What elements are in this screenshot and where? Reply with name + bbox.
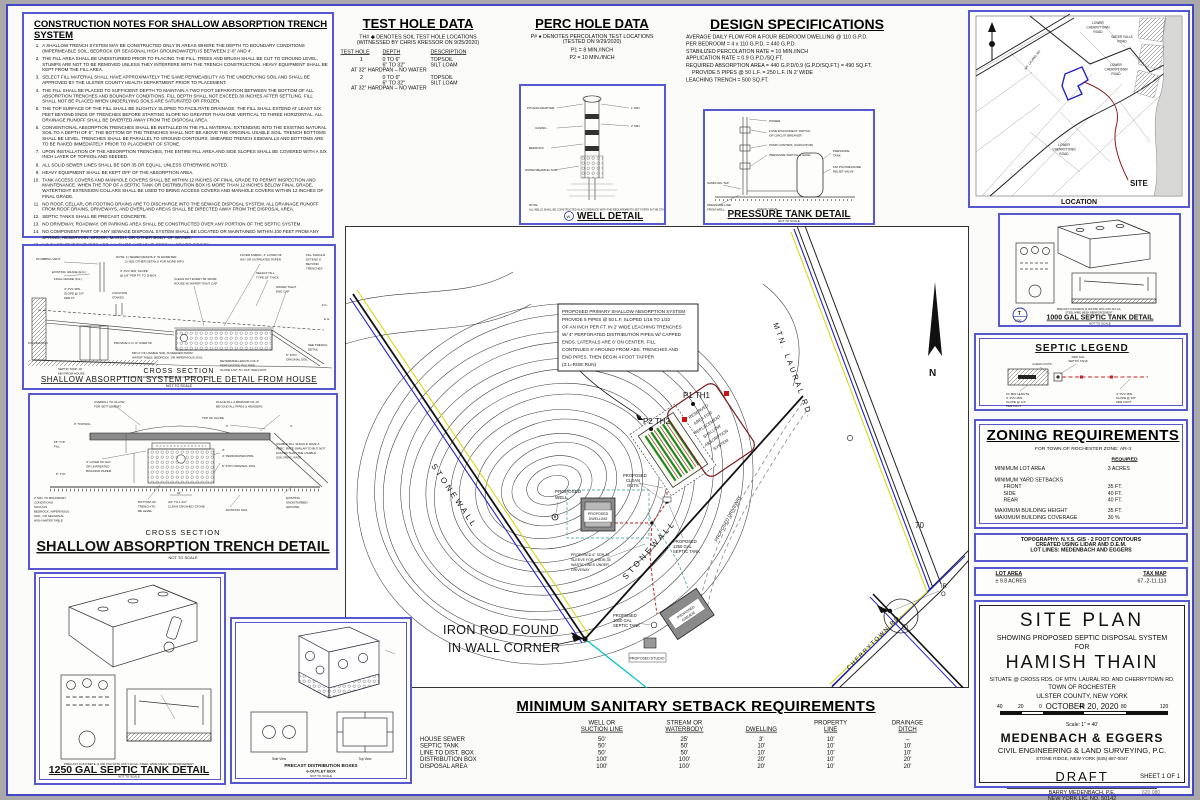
contour-70-label: 70 <box>915 521 924 530</box>
title-scale: Scale: 1" = 40' <box>980 722 1184 728</box>
location-map-panel: SITE MT. LAUREL RD LOWER CHERRYTOWN ROAD… <box>968 10 1190 208</box>
tax-map-header: TAX MAP <box>1143 571 1166 576</box>
trench-label: TRENCH TO <box>138 505 156 509</box>
spec-line: STABILIZED PERCOLATION RATE = 10 MIN./IN… <box>686 48 971 55</box>
svg-text:CONTINUES 6' AROUND FROM ABS.: CONTINUES 6' AROUND FROM ABS. TRENCHES A… <box>562 347 679 352</box>
perc-p1: P1 = 8 MIN./INCH <box>497 48 687 53</box>
road-label: ROAD <box>1117 40 1127 44</box>
trench-label: 2' MIN. TO BOUNDARY <box>34 496 66 500</box>
perc-p2: P2 = 10 MIN./INCH <box>497 55 687 60</box>
title-owner: HAMISH THAIN <box>980 652 1184 673</box>
hole-id: 1 <box>341 57 383 68</box>
spec-line: APPLICATION RATE = 0.9 G.P.D./SQ.FT. <box>686 55 971 62</box>
trench-label: FOR SETTLEMENT <box>94 405 121 409</box>
test-hole-data-block: TEST HOLE DATA TH# ◆ DENOTES SOIL TEST H… <box>336 16 500 151</box>
iron-rod-clip-text: IR <box>941 584 948 590</box>
col-depth: DEPTH <box>383 50 431 55</box>
note-item: HEAVY EQUIPMENT SHALL BE KEPT OFF OF THE… <box>41 170 328 175</box>
profile-label: 2) SEE OTHER DETAILS FOR MORE INFO <box>125 260 185 264</box>
perc-hole-data-block: PERC HOLE DATA P# ● DENOTES PERCOLATION … <box>497 16 687 78</box>
profile-label: EXISTING GRADE (E.G.) <box>52 270 86 274</box>
road-label: CHERRYTOWN <box>1086 26 1110 30</box>
hardpan-note: AT 32" HARDPAN – NO WATER <box>336 86 500 91</box>
road-label: ROAD <box>1093 30 1103 34</box>
trench-label: 4' <box>290 424 293 428</box>
setback-row-label: DISTRIBUTION BOX <box>420 756 563 763</box>
trench-detail-panel: OVERFILL TO ALLOW FOR SETTLEMENT 6" TOPS… <box>28 393 338 570</box>
profile-label: SLOPE @ 1/4" <box>64 292 84 296</box>
trench-nts: NOT TO SCALE <box>168 555 197 560</box>
svg-text:SEPTIC TANK: SEPTIC TANK <box>613 623 640 628</box>
trench-label: SUCH AS <box>34 505 47 509</box>
profile-label: FILTER FABRIC, 4" LAYER OF <box>240 253 282 257</box>
iron-rod-clip-text: O <box>941 592 946 598</box>
well-note-label: NOTE: <box>529 203 538 207</box>
trench-label: BE LEVEL <box>138 509 153 513</box>
hardpan-note: AT 32" HARDPAN – NO WATER <box>336 68 500 73</box>
profile-label: 6" INTO <box>286 353 297 357</box>
road-label: LOWER <box>1110 63 1122 67</box>
soil: SILT LOAM <box>431 81 458 86</box>
profile-label: E.G. <box>324 317 330 321</box>
tank-1000-nts: NOT TO SCALE <box>1089 322 1111 326</box>
profile-label: END CAP <box>276 290 289 294</box>
title-town: TOWN OF ROCHESTER <box>980 685 1184 691</box>
title-license: NEW YORK LIC. NO. 50142 <box>980 796 1184 800</box>
dbox-side-view: Side View <box>272 757 287 761</box>
profile-label: PROVIDE C.O. IF OVER 50' <box>114 341 153 345</box>
note-item: CONVENTIONAL ABSORPTION TRENCHES SHALL B… <box>41 126 328 148</box>
legend-right-note: PER FOOT <box>1116 400 1132 404</box>
trench-label: FASTER THAN THE USABLE <box>276 451 316 455</box>
trench-label: 6' <box>226 424 229 428</box>
tank-1250-panel: PRECAST CONCRETE (4,000 PSI) WITH 6X6 X1… <box>34 572 226 785</box>
well-detail-panel: PITLESS ADAPTER CASING BEDROCK WATER BEA… <box>519 84 666 225</box>
profile-detail-panel: PLUMBING VENT EXISTING GRADE (E.G.) FINA… <box>22 244 336 390</box>
title-firm3: STONE RIDGE, NEW YORK (845) 687-0047 <box>980 756 1184 761</box>
p-prefix: P# <box>531 34 537 39</box>
profile-label: PLUMBING VENT <box>36 257 61 261</box>
pt-label-fuse: OR CIRCUIT BREAKER <box>769 134 802 138</box>
iron-rod-text: IRON ROD FOUND <box>443 623 559 637</box>
note-item: UPON INSTALLATION OF THE ABSORPTION TREN… <box>41 150 328 161</box>
profile-label: HOUSE W/ WATER TIGHT CAP <box>174 282 217 286</box>
dbox-top-view: Top View <box>359 757 373 761</box>
zoning-row-value: 40 FT. <box>1108 491 1172 496</box>
studio-label: PROPOSED STUDIO <box>630 657 665 661</box>
trench-cross-section: CROSS SECTION <box>145 528 220 537</box>
zoning-row-value: 3 ACRES <box>1108 466 1172 471</box>
septic-tank-1250-symbol <box>663 497 671 502</box>
svg-text:OF AN INCH PER FT. IN 2' WIDE: OF AN INCH PER FT. IN 2' WIDE LEACHING T… <box>562 325 682 330</box>
design-specs-title: DESIGN SPECIFICATIONS <box>710 16 971 32</box>
trench-label: UNDISTURBED <box>286 501 309 505</box>
profile-label: PER FT. <box>64 296 75 300</box>
setback-col-header: PROPERTY <box>814 719 847 726</box>
note-item: THE TOP SURFACE OF THE FILL SHALL BE SLI… <box>41 107 328 123</box>
road-label: CHERRYTOWN <box>1052 148 1076 152</box>
spec-line: LEACHING TRENCH = 500 SQ.FT. <box>686 76 971 83</box>
profile-label: F.G. <box>322 303 328 307</box>
profile-label: HAY OR UNTREATED PAPER <box>240 258 282 262</box>
trench-label: CLEAN CRUSHED STONE <box>168 505 205 509</box>
well-dim-2: 2' MIN <box>631 124 640 128</box>
septic-legend-title: SEPTIC LEGEND <box>1035 343 1129 354</box>
setback-table: WELL ORSUCTION LINE STREAM ORWATERBODY D… <box>420 719 972 769</box>
profile-nts: NOT TO SCALE <box>166 384 193 388</box>
setback-col-header: WELL OR <box>588 719 615 726</box>
well-dim-1: 1' MIN <box>631 106 640 110</box>
title-site-plan: SITE PLAN <box>980 610 1184 632</box>
scale-tick: 20 <box>1018 704 1024 710</box>
title-situate: SITUATE @ CROSS RDS. OF MTN. LAURAL RD. … <box>980 677 1184 683</box>
title-showing: SHOWING PROPOSED SEPTIC DISPOSAL SYSTEM <box>980 635 1184 642</box>
zoning-row-value: 35 FT. <box>1108 508 1172 513</box>
note-item: A SHALLOW TRENCH SYSTEM MAY BE CONSTRUCT… <box>41 44 328 55</box>
trench-label: SOIL, OR SEASONAL <box>34 514 64 518</box>
profile-label: @ 1/8" PER FT. TO D-BOX <box>120 274 156 278</box>
title-for: FOR <box>980 644 1184 651</box>
note-item: SELECT FILL MATERIAL SHALL HAVE APPROXIM… <box>41 76 328 87</box>
tank-1250-sketch <box>61 585 211 759</box>
road-label: WATER FALLS <box>1111 35 1133 39</box>
spec-line: AVERAGE DAILY FLOW FOR A FOUR BEDROOM DW… <box>686 34 971 41</box>
trench-label: 3" <box>222 448 225 452</box>
setback-row-label: DISPOSAL AREA <box>420 763 563 770</box>
scale-tick: 40 <box>1079 704 1085 710</box>
soil: SILT LOAM <box>431 63 458 68</box>
perc-test-2-label: P2 TH2 <box>643 417 671 426</box>
road-label: ROAD <box>1059 152 1069 156</box>
profile-label: STAKES <box>112 296 124 300</box>
profile-label: CLEAN OUT EVERY 50' FROM <box>174 277 217 281</box>
pt-label-power: POWER <box>769 119 781 123</box>
trench-label: SOIL PERC. RATE <box>276 456 301 460</box>
note-item: NO DRIVEWAY, ROADWAY, OR PARKING AREA SH… <box>41 223 328 228</box>
trench-label: GROUND <box>286 505 300 509</box>
screenshot: N RESERVED AREA FOR REPLACEMENT SHALLOW … <box>0 0 1200 800</box>
road-label: LOWER <box>1092 21 1104 25</box>
trench-label: 6" TYP. <box>56 472 66 476</box>
zoning-subtitle: FOR TOWN OF ROCHESTER ZONE: AR-3 <box>984 446 1182 451</box>
pressure-tank-panel: POWER FUSE DISCONNECT SWITCH OR CIRCUIT … <box>703 109 875 225</box>
dwelling-label: DWELLING <box>589 517 608 521</box>
title-firm2: CIVIL ENGINEERING & LAND SURVEYING, P.C. <box>980 746 1184 755</box>
tank-symbol-1000: 1000 <box>1015 319 1022 323</box>
legend-left-note: PER FOOT <box>1006 404 1022 407</box>
proposed-well-label: WELL <box>555 495 568 500</box>
scale-tick: 80 <box>1121 704 1127 710</box>
doc-number: 620 080 <box>1142 790 1160 796</box>
zoning-row-label: MINIMUM LOT AREA <box>995 466 1108 471</box>
sheet-number: SHEET 1 OF 1 <box>1140 774 1180 780</box>
location-map-frame <box>976 16 1182 196</box>
pt-label-relief: RELIEF VALVE <box>833 170 854 174</box>
spec-line: PER BEDROOM = 4 x 110 G.P.D. = 440 G.P.D… <box>686 41 971 48</box>
spec-line: REQUIRED ABSORPTION AREA = 440 G.P.D/0.9… <box>686 62 971 69</box>
dwelling-label: PROPOSED <box>588 512 609 516</box>
well-label-casing: CASING <box>535 126 547 130</box>
scale-tick: 0 <box>1039 704 1042 710</box>
svg-text:ENDS. LATERALS ARE 6' ON CENT: ENDS. LATERALS ARE 6' ON CENTER. FILL <box>562 340 656 345</box>
hole-id: 2 <box>341 75 383 86</box>
profile-label: SLOPE 1/32" TO 1/16" PER FOOT <box>220 368 267 372</box>
spec-line: PROVIDE 5 PIPES @ 50 L.F. = 250 L.F. IN … <box>686 69 971 76</box>
profile-label: FOUNDATION <box>28 341 48 345</box>
svg-text:DRIVEWAY: DRIVEWAY <box>571 568 590 572</box>
pt-label-tank: PRESSURE <box>833 149 850 153</box>
zoning-row-label: REAR <box>1004 498 1108 503</box>
col-description: DESCRIPTION <box>431 50 467 55</box>
construction-notes-panel: CONSTRUCTION NOTES FOR SHALLOW ABSORPTIO… <box>22 12 334 238</box>
site-label: SITE <box>1130 179 1148 188</box>
zoning-row-label: MINIMUM YARD SETBACKS <box>995 478 1108 483</box>
perc-hole-title: PERC HOLE DATA <box>497 16 687 31</box>
tank-1250-nts: NOT TO SCALE <box>118 775 140 778</box>
p1-symbol <box>691 402 695 406</box>
svg-text:SEPTIC TANK: SEPTIC TANK <box>673 549 700 554</box>
title-firm: MEDENBACH & EGGERS <box>980 731 1184 745</box>
zoning-required-header: REQUIRED <box>1112 457 1182 462</box>
trench-label: FILL <box>54 445 60 449</box>
profile-label: 4" PVC MIN. SLOPE <box>120 269 148 273</box>
setback-col-header: DRAINAGE <box>892 719 923 726</box>
trench-label: PLACE FILL A MINIMUM OF 10' <box>216 400 260 404</box>
road-label: ROAD <box>1111 72 1121 76</box>
well-symbol-letter: W <box>567 214 571 219</box>
trench-label: EXISTING <box>286 496 301 500</box>
road-label: CHERRYTOWN <box>1104 68 1128 72</box>
trench-label: CONDITIONS <box>34 501 53 505</box>
zoning-panel: ZONING REQUIREMENTS FOR TOWN OF ROCHESTE… <box>974 419 1188 529</box>
th1-symbol <box>724 391 729 396</box>
profile-label: NOTE: 1) SEWER DRAINS 4" IN DIAMETER <box>116 255 177 259</box>
profile-label: TRENCHES <box>306 267 323 271</box>
well-label-bedrock: BEDROCK <box>529 146 544 150</box>
profile-label: BEYOND <box>306 262 320 266</box>
svg-text:PROPOSED 6" SDR-35: PROPOSED 6" SDR-35 <box>571 553 609 557</box>
note-item: SEPTIC TANKS SHALL BE PRECAST CONCRETE. <box>41 215 328 220</box>
setback-title: MINIMUM SANITARY SETBACK REQUIREMENTS <box>516 698 875 715</box>
zoning-row-label: MAXIMUM BUILDING HEIGHT <box>995 508 1108 513</box>
proposed-studio-building <box>644 638 656 648</box>
trench-label: 6" TOPSOIL <box>74 422 91 426</box>
perc-symbol-icon: ● <box>539 34 542 39</box>
zoning-row-label: SIDE <box>1004 491 1108 496</box>
zoning-row-label: FRONT <box>1004 484 1108 489</box>
iron-rod-text: IN WALL CORNER <box>448 641 560 655</box>
tank-1000-sketch <box>1016 220 1156 303</box>
trench-label: BOTTOM OF <box>138 500 156 504</box>
trench-label: 24" <box>177 491 181 495</box>
test-hole-title: TEST HOLE DATA <box>336 16 500 31</box>
scale-tick: 40 <box>997 704 1003 710</box>
profile-label: PERFORATED PVC PIPE <box>220 364 255 368</box>
lot-area-value: ± 9.8 ACRES <box>996 579 1138 584</box>
profile-label: MIN 2' OF USABLE SOIL IS NEEDED FROM <box>132 351 193 355</box>
dbox-title: PRECAST DISTRIBUTION BOXES <box>284 763 357 768</box>
profile-label: WATER TABLE, BEDROCK, OR IMPERVIOUS SOIL <box>132 356 203 360</box>
pt-label-tap: SAMPLING TAP <box>707 181 729 185</box>
trench-label: 4" LAYER OF HAY <box>86 460 111 464</box>
trench-label: USABLE FILL SHOULD HAVE A <box>276 442 319 446</box>
well-symbol-dot <box>554 516 556 518</box>
trench-label: EXISTING SOIL <box>226 508 248 512</box>
profile-cross-section: CROSS SECTION <box>144 368 215 375</box>
profile-label: ORIGINAL SOIL <box>286 358 308 362</box>
tax-map-value: 67.-2-11.113 <box>1137 579 1166 584</box>
witnessed-line: (WITNESSED BY CHRIS KRESSOR ON 9/25/2020… <box>336 40 500 45</box>
trench-label: 3/4" TO 1-1/2" <box>168 500 187 504</box>
trench-label: 6" INTO ORIGINAL SOIL <box>222 464 256 468</box>
trench-label: BEYOND ALL PIPES & HEADERS <box>216 405 262 409</box>
septic-tank-1000-symbol <box>651 622 657 628</box>
profile-label: DETAIL <box>308 348 319 352</box>
pt-label-tank: TANK <box>833 154 841 158</box>
trench-label: PERC. RATE SIMILAR TO BUT NOT <box>276 447 326 451</box>
construction-notes-title: CONSTRUCTION NOTES FOR SHALLOW ABSORPTIO… <box>34 19 328 41</box>
proposed-well-label: PROPOSED <box>555 489 582 494</box>
trench-label: BUILDING PAPER <box>86 469 112 473</box>
svg-text:END PIPES. THEN BEGIN 4 FOOT T: END PIPES. THEN BEGIN 4 FOOT TAPPER <box>562 355 655 360</box>
pt-label-switch: PRESSURE SWITCH & GAGE <box>769 153 811 157</box>
profile-label: TYPE 18" THICK <box>256 276 279 280</box>
trench-label: HIGH WATER TABLE <box>34 519 63 523</box>
zoning-row-value: 30 % <box>1108 515 1172 520</box>
tank-1000-note: PRECAST CONCRETE (4,000 PSI) WITH 6X6 X1… <box>1057 307 1122 311</box>
note-item: NO COMPONENT PART OF ANY SEWAGE DISPOSAL… <box>41 230 328 241</box>
legend-sketch <box>1008 364 1148 391</box>
tank-1000-title: 1000 GAL SEPTIC TANK DETAIL <box>1047 315 1155 322</box>
svg-text:(3:1=RISE:RUN): (3:1=RISE:RUN) <box>562 362 597 367</box>
trench-label: 4" PERFORATED PIPE <box>222 454 254 458</box>
pt-label-fuse: FUSE DISCONNECT SWITCH <box>769 129 810 133</box>
title-county: ULSTER COUNTY, NEW YORK <box>980 693 1184 700</box>
topo-line: LOT LINES: MEDENBACH AND EGGERS <box>976 548 1186 553</box>
note-item: ALL SOLID SEWER LINES SHALL BE SDR 35 OR… <box>41 163 328 168</box>
th2-symbol <box>682 417 687 422</box>
legend-cleanouts-label: CLEAN OUTS <box>1032 362 1051 366</box>
profile-label: LOCATION <box>112 291 127 295</box>
cleanouts-label: OUTS <box>627 483 639 488</box>
trench-title: SHALLOW ABSORPTION TRENCH DETAIL <box>36 539 329 555</box>
profile-label: SELECT FILL <box>256 271 275 275</box>
road-label: LOWER <box>1058 143 1070 147</box>
note-item: THE FILL AREA SHALL BE UNDISTURBED PRIOR… <box>41 57 328 73</box>
profile-label: FILL SHOULD <box>306 253 326 257</box>
pt-label-line: PRESSURE LINE <box>707 203 731 207</box>
zoning-row-value: 35 FT. <box>1108 484 1172 489</box>
svg-text:PROVIDE 5 PIPES @ 50 L.F, SLOP: PROVIDE 5 PIPES @ 50 L.F, SLOPED 1/16 TO… <box>562 317 671 322</box>
legend-tank-label: SEPTIC TANK <box>1068 359 1087 363</box>
setback-requirements-block: MINIMUM SANITARY SETBACK REQUIREMENTS WE… <box>420 698 972 790</box>
profile-label: EXTEND 6' <box>306 258 322 262</box>
pt-label-relief: 150 PSI PRESSURE <box>833 165 861 169</box>
scale-tick: 120 <box>1160 704 1168 710</box>
note-item: TANK ACCESS COVERS AND MANHOLE COVERS SH… <box>41 178 328 200</box>
pt-label-pump: PUMP CONTROL (CAPACITOR) <box>769 143 813 147</box>
trench-label: TOP OF SLOPE <box>202 416 224 420</box>
svg-text:SLEEVE FOR 4"SDR-35: SLEEVE FOR 4"SDR-35 <box>571 558 611 562</box>
svg-text:WASTE LINES UNDER: WASTE LINES UNDER <box>571 563 609 567</box>
zoning-title: ZONING REQUIREMENTS <box>984 427 1182 444</box>
title-block-panel: SITE PLAN SHOWING PROPOSED SEPTIC DISPOS… <box>974 600 1190 788</box>
p2-symbol <box>649 427 653 431</box>
svg-text:W/ 4" PERFORATED DISTRIBUTION: W/ 4" PERFORATED DISTRIBUTION PIPES W/ C… <box>562 332 682 337</box>
dbox-sketch <box>251 627 395 752</box>
tested-line: (TESTED ON 9/29/2020) <box>497 39 687 44</box>
setback-row-label: LINE TO DIST. BOX <box>420 749 563 756</box>
note-item: NO ROOF, CELLAR, OR FOOTING DRAINS ARE T… <box>41 202 328 213</box>
well-label-pitless: PITLESS ADAPTER <box>527 106 555 110</box>
trench-label: OR UNTREATED <box>86 465 110 469</box>
dbox-nts: NOT TO SCALE <box>310 774 332 777</box>
septic-legend-panel: SEPTIC LEGEND 1000 GAL SEPTIC TANK CLEAN… <box>974 333 1188 411</box>
trench-label: 18" TYP. <box>54 440 66 444</box>
distribution-box-panel: Side View Top View PRECAST DISTRIBUTION … <box>230 617 412 784</box>
location-caption: LOCATION <box>1061 199 1097 206</box>
profile-label: SEE TRENCH <box>308 343 327 347</box>
topography-panel: TOPOGRAPHY: N.Y.S. GIS - 2 FOOT CONTOURS… <box>974 533 1188 562</box>
scale-bar: 40 20 0 40 80 120 <box>1000 704 1168 720</box>
setback-col-header: STREAM OR <box>667 719 703 726</box>
col-test-hole: TEST HOLE <box>341 50 383 55</box>
tank-1000-panel: PRECAST CONCRETE (4,000 PSI) WITH 6X6 X1… <box>998 213 1181 327</box>
setback-row-label: HOUSE SEWER <box>420 736 563 743</box>
lot-area-header: LOT AREA <box>996 571 1144 576</box>
dbox-subtitle: 6-OUTLET BOX <box>306 769 336 774</box>
site-plan-map: N RESERVED AREA FOR REPLACEMENT SHALLOW … <box>345 226 969 688</box>
zoning-row-label: MAXIMUM BUILDING COVERAGE <box>995 515 1108 520</box>
construction-notes-list: A SHALLOW TRENCH SYSTEM MAY BE CONSTRUCT… <box>28 44 328 256</box>
pressure-tank-nts: NOT TO SCALE <box>778 219 800 223</box>
well-label-water: WATER BEARING SOIL <box>525 168 558 172</box>
note-item: THE FILL SHALL BE PLACED TO SUFFICIENT D… <box>41 89 328 105</box>
lot-tax-panel: LOT AREATAX MAP ± 9.8 ACRES67.-2-11.113 <box>974 567 1188 596</box>
profile-label: DETERMINE LENGTH OF 4" <box>220 359 259 363</box>
pt-label-line: FROM WELL <box>707 208 725 212</box>
trench-label: OVERFILL TO ALLOW <box>94 400 125 404</box>
zoning-row-value: 40 FT. <box>1108 498 1172 503</box>
setback-row-label: SEPTIC TANK <box>420 742 563 749</box>
design-specs-block: DESIGN SPECIFICATIONS AVERAGE DAILY FLOW… <box>686 16 971 86</box>
well-detail-title: WELL DETAIL <box>577 211 643 222</box>
well-sketch <box>551 96 629 200</box>
north-label: N <box>929 368 936 379</box>
perc-test-1-label: P1 TH1 <box>683 391 711 400</box>
profile-label: FINAL GRADE (F.G.) <box>54 277 82 281</box>
trench-label: BEDROCK, IMPERVIOUS <box>34 510 69 514</box>
tank-symbol-t: T <box>1018 311 1021 317</box>
svg-text:PROPOSED PRIMARY SHALLOW ABSOR: PROPOSED PRIMARY SHALLOW ABSORPTION SYST… <box>562 309 685 314</box>
profile-label: 4" PVC MIN. <box>64 287 81 291</box>
profile-label: SEPTIC TANK 10' <box>58 367 83 371</box>
profile-title: SHALLOW ABSORPTION SYSTEM PROFILE DETAIL… <box>41 375 317 384</box>
profile-label: WATER TIGHT <box>276 285 296 289</box>
